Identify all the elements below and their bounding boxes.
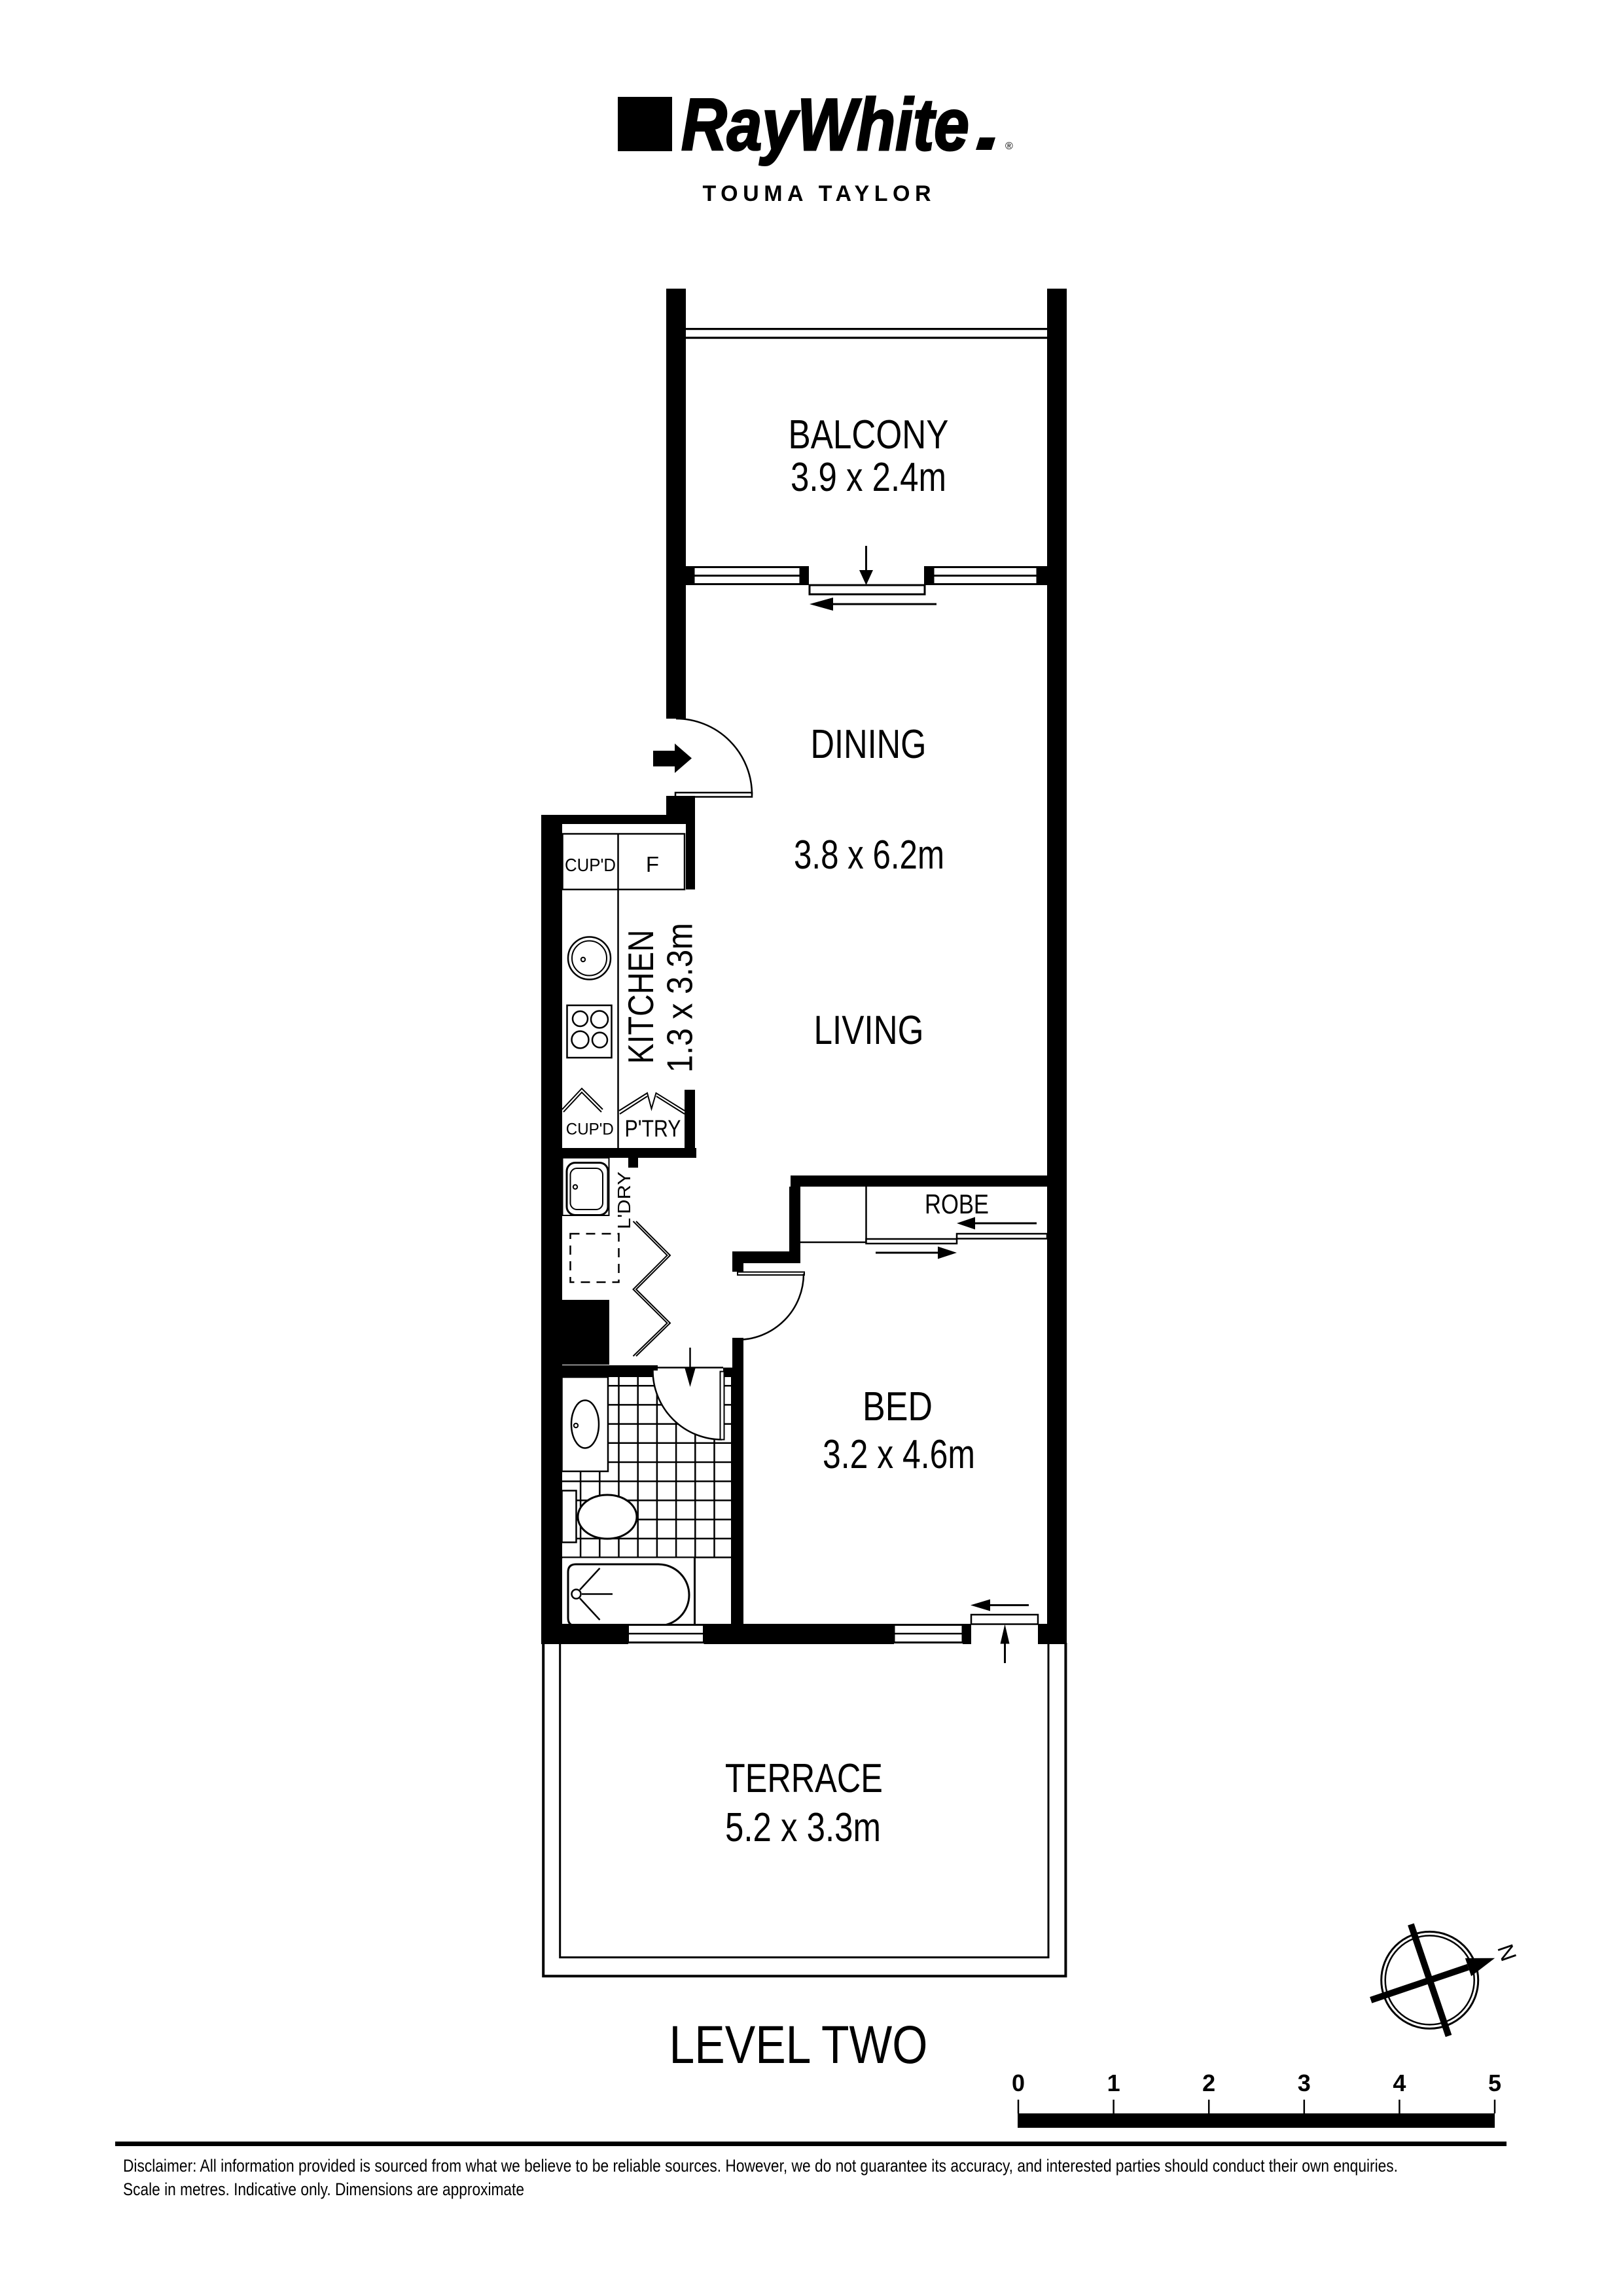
svg-text:3.9 x 2.4m: 3.9 x 2.4m xyxy=(791,455,946,500)
svg-text:5.2 x 3.3m: 5.2 x 3.3m xyxy=(725,1805,881,1850)
svg-text:1.3 x 3.3m: 1.3 x 3.3m xyxy=(660,923,700,1073)
svg-text:L'DRY: L'DRY xyxy=(614,1172,634,1229)
svg-text:3.2 x 4.6m: 3.2 x 4.6m xyxy=(823,1432,975,1477)
svg-text:RayWhite: RayWhite xyxy=(681,84,969,166)
svg-text:DINING: DINING xyxy=(811,722,927,767)
svg-text:ROBE: ROBE xyxy=(925,1189,989,1219)
svg-text:BALCONY: BALCONY xyxy=(789,412,949,457)
svg-text:F: F xyxy=(646,852,659,876)
svg-text:3: 3 xyxy=(1298,2070,1311,2096)
svg-text:CUP'D: CUP'D xyxy=(566,1121,614,1139)
svg-text:LEVEL TWO: LEVEL TWO xyxy=(669,2015,928,2075)
svg-text:1: 1 xyxy=(1107,2070,1120,2096)
svg-text:®: ® xyxy=(1005,141,1013,152)
svg-text:TERRACE: TERRACE xyxy=(725,1756,883,1801)
svg-text:4: 4 xyxy=(1393,2070,1406,2096)
svg-text:CUP'D: CUP'D xyxy=(565,855,616,875)
svg-text:P'TRY: P'TRY xyxy=(625,1115,681,1142)
svg-text:KITCHEN: KITCHEN xyxy=(620,930,661,1064)
svg-text:Scale in metres. Indicative on: Scale in metres. Indicative only. Dimens… xyxy=(123,2179,524,2199)
svg-text:LIVING: LIVING xyxy=(814,1008,924,1053)
svg-text:0: 0 xyxy=(1012,2070,1025,2096)
svg-text:3.8 x 6.2m: 3.8 x 6.2m xyxy=(794,833,944,878)
svg-text:BED: BED xyxy=(863,1384,933,1429)
svg-text:5: 5 xyxy=(1488,2070,1501,2096)
svg-text:2: 2 xyxy=(1202,2070,1215,2096)
svg-text:Disclaimer: All information pr: Disclaimer: All information provided is … xyxy=(123,2156,1398,2176)
